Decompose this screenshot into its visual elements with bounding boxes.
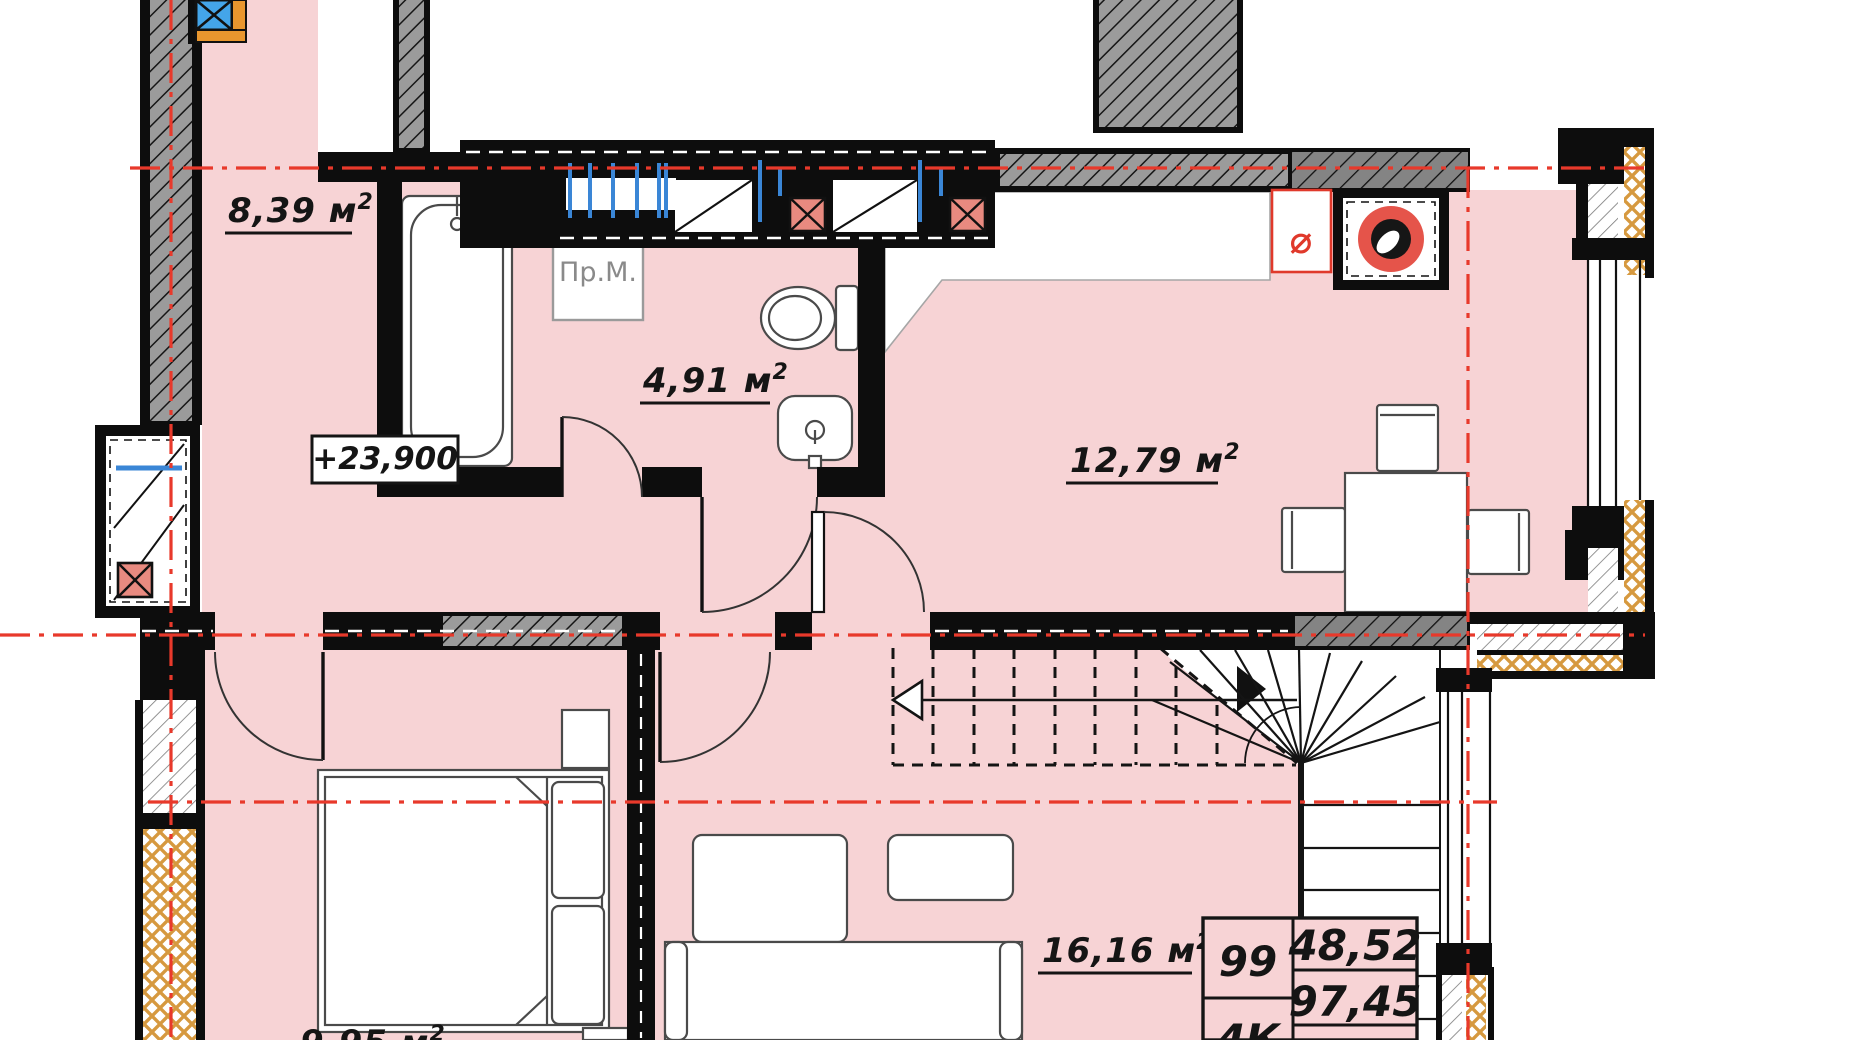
right-wall-corner	[1470, 612, 1655, 679]
stamp-apartment-number: 99	[1219, 937, 1277, 986]
elevation-marker: +23,900	[312, 436, 458, 483]
elevation-value: +23,900	[312, 441, 458, 477]
stamp-living-area: 48,52	[1288, 921, 1422, 970]
ottoman	[888, 835, 1013, 900]
stamp-total-area: 97,45	[1289, 977, 1422, 1026]
apartment-stamp: 99 48,52 97,45 4К	[1203, 918, 1421, 1040]
left-duct-shaft	[95, 425, 200, 618]
room-label-bedroom-partial: 9,95 м2	[300, 1022, 446, 1040]
duct-marker-box: ⌀	[1272, 190, 1331, 272]
right-w all-living-window	[1436, 668, 1494, 1040]
floor-plan-page: Пр.М.	[0, 0, 1850, 1040]
duct-diameter-symbol: ⌀	[1290, 218, 1313, 262]
vent-shaft-wall	[460, 140, 995, 248]
room-label-hall: 8,39 м2	[228, 190, 374, 231]
floor-plan-drawing: Пр.М.	[0, 0, 1850, 1040]
room-label-bathroom: 4,91 м2	[642, 360, 789, 401]
sink	[778, 396, 852, 468]
room-label-living: 16,16 м2	[1042, 930, 1213, 971]
room-label-kitchen: 12,79 м2	[1070, 440, 1241, 481]
corner-duct-box	[188, 0, 246, 44]
toilet	[761, 286, 858, 350]
washing-machine-label: Пр.М.	[559, 257, 637, 288]
vent-pipe-box	[1333, 188, 1449, 290]
stamp-rooms-count: 4К	[1215, 1015, 1282, 1040]
